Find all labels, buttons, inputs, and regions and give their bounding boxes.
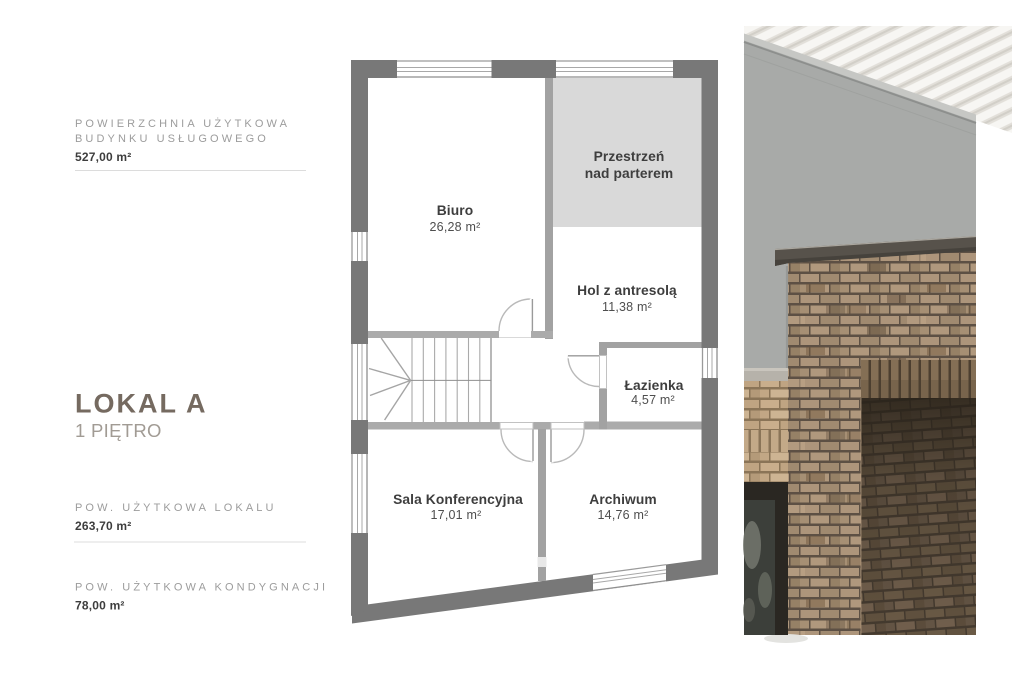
svg-text:11,38 m²: 11,38 m² xyxy=(602,300,652,314)
svg-text:Łazienka: Łazienka xyxy=(624,378,683,393)
svg-text:Sala Konferencyjna: Sala Konferencyjna xyxy=(393,492,523,507)
svg-text:1 PIĘTRO: 1 PIĘTRO xyxy=(75,420,162,441)
svg-text:Archiwum: Archiwum xyxy=(589,492,657,507)
svg-text:Przestrzeń: Przestrzeń xyxy=(594,149,665,164)
svg-text:Hol z antresolą: Hol z antresolą xyxy=(577,283,677,298)
svg-text:Biuro: Biuro xyxy=(437,203,474,218)
svg-text:BUDYNKU USŁUGOWEGO: BUDYNKU USŁUGOWEGO xyxy=(75,133,269,145)
svg-text:78,00 m²: 78,00 m² xyxy=(75,599,125,613)
svg-text:263,70 m²: 263,70 m² xyxy=(75,519,132,533)
svg-text:26,28 m²: 26,28 m² xyxy=(430,220,481,234)
svg-text:POW. UŻYTKOWA LOKALU: POW. UŻYTKOWA LOKALU xyxy=(75,501,277,514)
svg-text:4,57 m²: 4,57 m² xyxy=(631,393,675,407)
svg-text:POWIERZCHNIA UŻYTKOWA: POWIERZCHNIA UŻYTKOWA xyxy=(75,117,290,130)
svg-text:17,01 m²: 17,01 m² xyxy=(431,508,482,522)
svg-text:POW. UŻYTKOWA KONDYGNACJI: POW. UŻYTKOWA KONDYGNACJI xyxy=(75,581,328,594)
svg-text:LOKAL A: LOKAL A xyxy=(75,389,208,419)
svg-text:14,76 m²: 14,76 m² xyxy=(598,508,649,522)
svg-text:nad parterem: nad parterem xyxy=(585,166,674,181)
svg-text:527,00 m²: 527,00 m² xyxy=(75,150,132,164)
